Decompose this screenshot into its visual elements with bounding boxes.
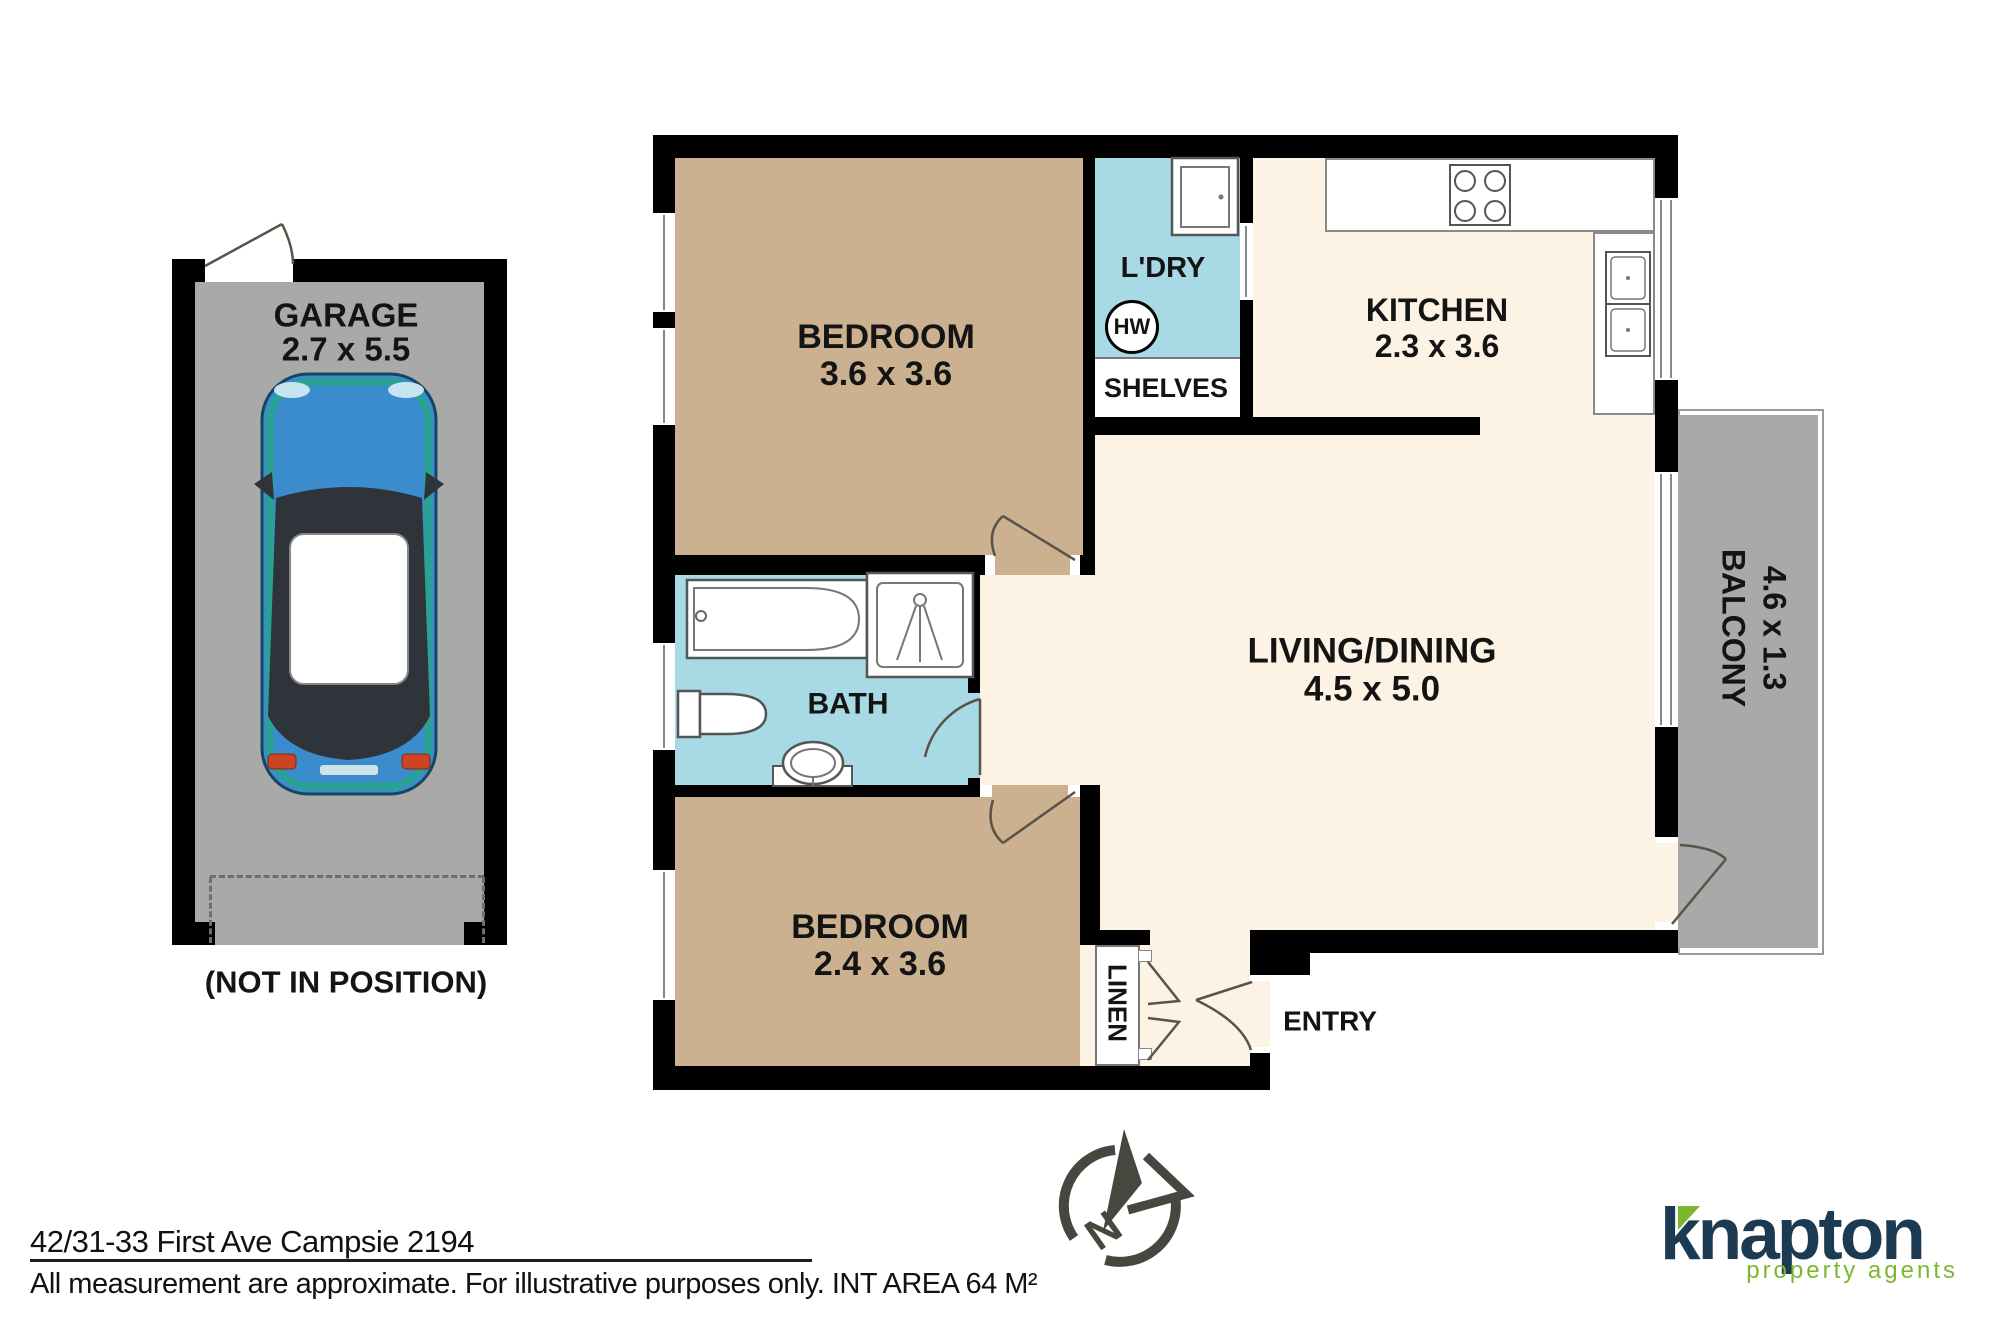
wall	[1083, 417, 1480, 435]
agency-logo-tagline: property agents	[1746, 1257, 1958, 1285]
door-jamb	[1070, 555, 1080, 575]
kitchen-dims: 2.3 x 3.6	[1375, 330, 1500, 364]
garage-wall	[464, 922, 484, 945]
bedroom2-dims: 2.4 x 3.6	[814, 947, 946, 983]
door-opening	[992, 785, 1068, 797]
car-icon	[248, 366, 450, 802]
garage-door-dashed-line	[209, 877, 212, 943]
door-jamb	[985, 555, 995, 575]
door-opening	[1250, 981, 1270, 1047]
door-jamb	[1250, 1047, 1270, 1053]
garage-door-dashed-line	[210, 875, 484, 878]
kitchen-counter-right	[1593, 232, 1655, 415]
north-compass-icon: N	[1050, 1128, 1200, 1278]
entry-label: ENTRY	[1283, 1006, 1377, 1035]
wall	[1250, 1053, 1270, 1066]
bedroom2-name: BEDROOM	[791, 910, 969, 946]
wall	[1083, 158, 1095, 575]
balcony-dims: 4.6 x 1.3	[1756, 566, 1793, 691]
laundry-kitchen-opening	[1240, 223, 1253, 300]
garage-wall	[484, 282, 507, 945]
wall	[1250, 930, 1678, 953]
wall	[1080, 797, 1100, 932]
laundry-name: L'DRY	[1121, 253, 1206, 283]
wall	[1080, 785, 1100, 797]
bath-name: BATH	[807, 688, 888, 720]
door-jamb	[1655, 922, 1678, 930]
wall	[653, 555, 985, 575]
floor-plan-page: HW	[0, 0, 2000, 1333]
garage-wall	[293, 259, 507, 282]
wall	[1240, 300, 1253, 435]
garage-name: GARAGE	[274, 297, 419, 334]
living-dims: 4.5 x 5.0	[1304, 672, 1440, 709]
door-jamb	[1068, 785, 1080, 797]
wall	[653, 135, 1678, 158]
garage-label: GARAGE	[274, 299, 419, 334]
bedroom1-name: BEDROOM	[797, 320, 975, 356]
door-opening	[995, 555, 1070, 575]
hot-water-unit: HW	[1105, 300, 1159, 354]
garage-dims: 2.7 x 5.5	[282, 333, 410, 368]
garage-note: (NOT IN POSITION)	[205, 967, 487, 1000]
balcony-name: BALCONY	[1715, 549, 1752, 707]
window	[653, 870, 675, 1000]
window	[653, 643, 675, 750]
window	[653, 213, 675, 312]
door-jamb	[1138, 1048, 1152, 1060]
wall	[968, 778, 980, 785]
window	[653, 328, 675, 425]
window	[1655, 472, 1678, 727]
wall	[1080, 930, 1150, 945]
garage-wall	[195, 922, 215, 945]
wall	[1250, 953, 1310, 975]
hot-water-label: HW	[1114, 314, 1151, 340]
garage-wall	[172, 259, 205, 282]
door-opening	[1655, 843, 1678, 922]
linen-label: LINEN	[1102, 964, 1133, 1042]
door-opening	[968, 693, 980, 778]
door-jamb	[980, 785, 992, 797]
footer-divider	[30, 1259, 812, 1262]
compass-north-label: N	[1077, 1202, 1131, 1260]
wall	[968, 575, 980, 693]
garage-wall	[172, 282, 195, 945]
wall	[653, 785, 980, 797]
shelves-label: SHELVES	[1104, 374, 1228, 402]
wall	[1080, 555, 1095, 575]
window	[1655, 198, 1678, 380]
garage-door-dashed-line	[482, 877, 485, 943]
kitchen-name: KITCHEN	[1366, 294, 1508, 328]
wall	[1240, 158, 1253, 223]
kitchen-counter-top	[1325, 158, 1655, 232]
address-text: 42/31-33 First Ave Campsie 2194	[30, 1224, 474, 1260]
disclaimer-text: All measurement are approximate. For ill…	[30, 1268, 1037, 1301]
wall	[653, 1066, 1270, 1090]
living-name: LIVING/DINING	[1248, 634, 1497, 671]
bath-floor	[675, 575, 980, 785]
bedroom1-dims: 3.6 x 3.6	[820, 357, 952, 393]
door-jamb	[1138, 950, 1152, 962]
